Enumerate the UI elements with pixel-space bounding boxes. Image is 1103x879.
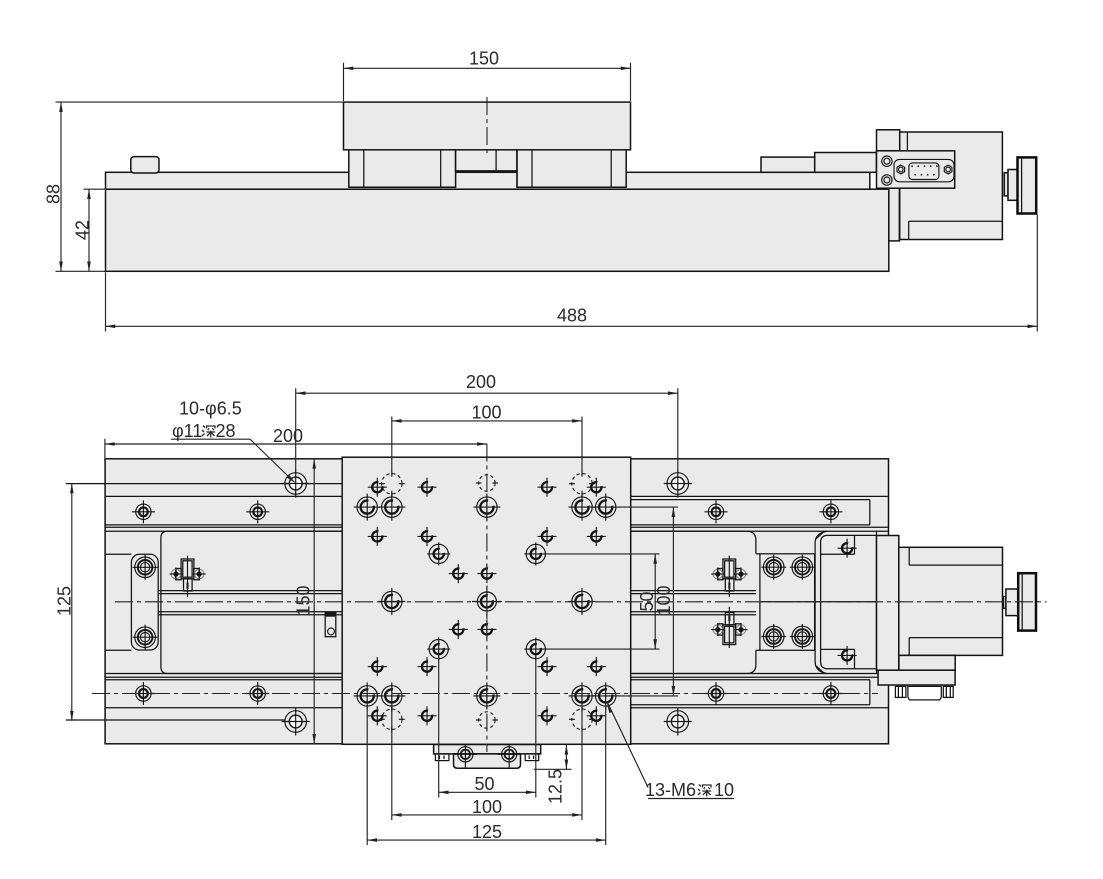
svg-text:100: 100 bbox=[654, 585, 674, 615]
svg-text:88: 88 bbox=[44, 184, 64, 204]
svg-text:488: 488 bbox=[557, 306, 587, 326]
svg-text:10: 10 bbox=[714, 780, 734, 800]
svg-text:125: 125 bbox=[54, 586, 74, 616]
svg-text:150: 150 bbox=[469, 49, 499, 69]
svg-text:125: 125 bbox=[472, 822, 502, 842]
svg-text:100: 100 bbox=[471, 402, 501, 422]
svg-text:200: 200 bbox=[273, 426, 303, 446]
svg-text:50: 50 bbox=[474, 774, 494, 794]
svg-text:10-φ6.5: 10-φ6.5 bbox=[179, 399, 242, 419]
svg-text:100: 100 bbox=[472, 797, 502, 817]
svg-text:28: 28 bbox=[216, 421, 236, 441]
svg-text:12.5: 12.5 bbox=[546, 769, 566, 804]
svg-text:φ11: φ11 bbox=[172, 421, 202, 441]
svg-text:200: 200 bbox=[466, 372, 496, 392]
svg-text:150: 150 bbox=[294, 585, 314, 615]
svg-text:42: 42 bbox=[72, 220, 92, 240]
svg-text:13-M6: 13-M6 bbox=[645, 780, 696, 800]
